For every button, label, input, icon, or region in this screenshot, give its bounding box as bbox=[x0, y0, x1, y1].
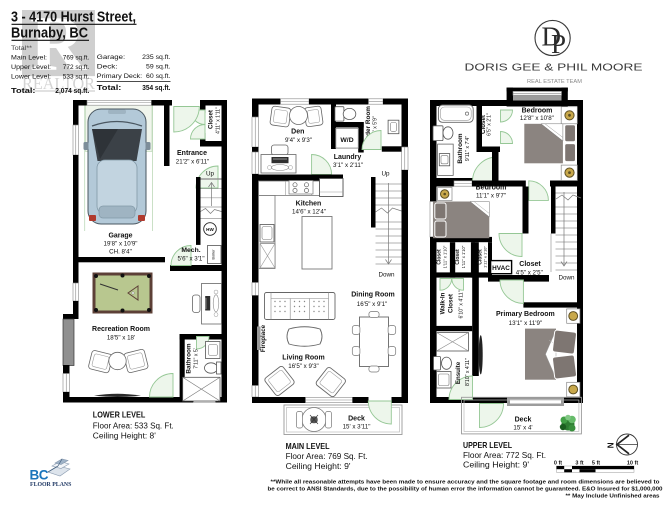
svg-text:DORIS GEE & PHIL MOORE: DORIS GEE & PHIL MOORE bbox=[465, 63, 643, 74]
svg-text:60 sq.ft.: 60 sq.ft. bbox=[146, 73, 171, 80]
svg-text:Entrance: Entrance bbox=[177, 150, 207, 157]
svg-text:Bathroom: Bathroom bbox=[185, 343, 192, 373]
svg-text:Deck:: Deck: bbox=[97, 64, 118, 71]
svg-text:Down: Down bbox=[378, 271, 395, 278]
svg-text:3 ft: 3 ft bbox=[575, 460, 583, 466]
svg-text:15' x 3'11": 15' x 3'11" bbox=[343, 424, 371, 431]
svg-text:LOWER LEVEL: LOWER LEVEL bbox=[93, 409, 146, 419]
svg-text:21'2" x 6'11": 21'2" x 6'11" bbox=[176, 159, 209, 166]
svg-text:1'11" x 1'10": 1'11" x 1'10" bbox=[482, 246, 487, 268]
svg-text:Primary Bedroom: Primary Bedroom bbox=[496, 311, 555, 318]
svg-text:Fireplace: Fireplace bbox=[260, 324, 267, 352]
svg-text:4'11" x 1'11": 4'11" x 1'11" bbox=[216, 107, 222, 134]
svg-text:16'5" x 9'3": 16'5" x 9'3" bbox=[288, 363, 319, 370]
svg-text:2,074 sq.ft.: 2,074 sq.ft. bbox=[55, 88, 89, 95]
svg-text:13'1" x 11'9": 13'1" x 11'9" bbox=[509, 320, 542, 327]
svg-text:Mech.: Mech. bbox=[181, 247, 200, 254]
svg-text:Total:: Total: bbox=[97, 85, 122, 92]
svg-text:8'10" x 4'11": 8'10" x 4'11" bbox=[465, 358, 471, 386]
svg-text:5'6" x 3'1": 5'6" x 3'1" bbox=[177, 256, 204, 263]
svg-text:Deck: Deck bbox=[348, 416, 365, 423]
svg-text:Floor Area: 769 Sq. Ft.: Floor Area: 769 Sq. Ft. bbox=[286, 452, 368, 461]
svg-text:Bathroom: Bathroom bbox=[457, 133, 464, 163]
svg-text:P: P bbox=[551, 29, 566, 59]
svg-text:Down: Down bbox=[558, 274, 575, 281]
svg-text:Ensuite: Ensuite bbox=[455, 361, 462, 384]
svg-text:Upper Level:: Upper Level: bbox=[11, 64, 51, 71]
svg-text:Burnaby, BC: Burnaby, BC bbox=[11, 25, 88, 42]
svg-text:7'11" x 5': 7'11" x 5' bbox=[194, 348, 200, 368]
svg-text:Bedroom: Bedroom bbox=[522, 108, 553, 115]
svg-text:HW: HW bbox=[206, 227, 214, 232]
svg-text:Ceiling Height: 9': Ceiling Height: 9' bbox=[286, 462, 352, 471]
svg-text:15' x 4': 15' x 4' bbox=[513, 424, 532, 431]
svg-text:**While all reasonable attempt: **While all reasonable attempts have bee… bbox=[271, 479, 661, 485]
svg-text:0 ft: 0 ft bbox=[554, 460, 562, 466]
svg-text:9'11" x 7'4": 9'11" x 7'4" bbox=[465, 136, 471, 161]
svg-text:14'6" x 12'4": 14'6" x 12'4" bbox=[292, 208, 326, 215]
svg-text:REAL ESTATE TEAM: REAL ESTATE TEAM bbox=[527, 79, 582, 85]
svg-text:Closet: Closet bbox=[208, 110, 215, 129]
svg-text:3 - 4170 Hurst Street,: 3 - 4170 Hurst Street, bbox=[11, 9, 136, 26]
svg-text:9'4" x 9'3": 9'4" x 9'3" bbox=[285, 137, 312, 144]
svg-text:Up: Up bbox=[206, 171, 215, 178]
svg-text:N: N bbox=[607, 442, 616, 448]
svg-text:11'1" x 9'7": 11'1" x 9'7" bbox=[476, 192, 506, 199]
svg-text:Lower Level:: Lower Level: bbox=[11, 74, 51, 81]
svg-text:Floor Area: 772 Sq. Ft.: Floor Area: 772 Sq. Ft. bbox=[463, 451, 546, 460]
svg-text:Recreation Room: Recreation Room bbox=[92, 326, 150, 333]
svg-text:Ceiling Height: 9': Ceiling Height: 9' bbox=[463, 460, 530, 469]
svg-text:FLOOR PLANS: FLOOR PLANS bbox=[30, 481, 72, 488]
svg-text:be correct to ANSI Standards,: be correct to ANSI Standards, due to the… bbox=[268, 487, 663, 493]
svg-text:Garage: Garage bbox=[108, 233, 132, 240]
svg-text:HVAC: HVAC bbox=[492, 265, 510, 272]
svg-text:Floor Area: 533 Sq. Ft.: Floor Area: 533 Sq. Ft. bbox=[93, 421, 174, 430]
svg-text:Bedroom: Bedroom bbox=[476, 185, 507, 192]
svg-text:1'11" x 1'10": 1'11" x 1'10" bbox=[442, 245, 447, 268]
svg-text:Walk-In: Walk-In bbox=[440, 292, 447, 314]
svg-text:Laundry: Laundry bbox=[334, 154, 362, 161]
svg-text:** May Include Unfinished area: ** May Include Unfinished areas bbox=[566, 493, 660, 499]
svg-text:354 sq.ft.: 354 sq.ft. bbox=[142, 85, 170, 92]
svg-text:Den: Den bbox=[291, 129, 304, 136]
svg-text:6'5" x 2'1": 6'5" x 2'1" bbox=[487, 113, 493, 136]
svg-text:59 sq.ft.: 59 sq.ft. bbox=[146, 64, 171, 71]
svg-text:1'11" x 1'10": 1'11" x 1'10" bbox=[461, 245, 466, 268]
svg-text:Main Level:: Main Level: bbox=[11, 55, 47, 62]
svg-text:Ceiling Height: 8': Ceiling Height: 8' bbox=[93, 431, 156, 440]
svg-text:16'5" x 9'1": 16'5" x 9'1" bbox=[357, 301, 388, 308]
svg-text:Up: Up bbox=[381, 170, 390, 177]
svg-text:UPPER LEVEL: UPPER LEVEL bbox=[463, 440, 512, 450]
svg-text:235 sq.ft.: 235 sq.ft. bbox=[142, 54, 170, 61]
svg-text:12'8" x 10'8": 12'8" x 10'8" bbox=[520, 115, 554, 122]
svg-text:3'1" x 2'11": 3'1" x 2'11" bbox=[333, 162, 363, 169]
svg-text:Primary Deck:: Primary Deck: bbox=[97, 73, 143, 80]
svg-text:MAIN LEVEL: MAIN LEVEL bbox=[286, 441, 330, 451]
svg-text:10 ft: 10 ft bbox=[627, 460, 638, 466]
svg-text:Boiler: Boiler bbox=[211, 249, 216, 260]
svg-text:5 ft: 5 ft bbox=[592, 460, 600, 466]
svg-text:4'5" x 2'5": 4'5" x 2'5" bbox=[516, 270, 543, 277]
svg-text:Total:: Total: bbox=[11, 88, 36, 95]
svg-text:19'8" x 10'9": 19'8" x 10'9" bbox=[104, 241, 138, 248]
svg-text:Living Room: Living Room bbox=[282, 355, 324, 362]
svg-text:Garage:: Garage: bbox=[97, 54, 126, 61]
svg-text:533 sq.ft.: 533 sq.ft. bbox=[63, 74, 90, 81]
svg-text:Total**: Total** bbox=[11, 45, 32, 52]
svg-text:769 sq.ft.: 769 sq.ft. bbox=[63, 55, 90, 62]
svg-text:Kitchen: Kitchen bbox=[296, 200, 322, 207]
svg-text:6'10" x 4'11": 6'10" x 4'11" bbox=[458, 290, 464, 318]
svg-text:Closet: Closet bbox=[519, 261, 541, 268]
svg-text:Deck: Deck bbox=[515, 417, 532, 424]
svg-text:CH. 8'4": CH. 8'4" bbox=[109, 249, 132, 256]
svg-text:Closet: Closet bbox=[448, 294, 455, 313]
svg-text:18'5" x 18': 18'5" x 18' bbox=[107, 335, 135, 342]
svg-text:W/D: W/D bbox=[340, 137, 353, 144]
svg-text:Dining Room: Dining Room bbox=[351, 292, 395, 299]
svg-text:772 sq.ft.: 772 sq.ft. bbox=[63, 64, 90, 71]
